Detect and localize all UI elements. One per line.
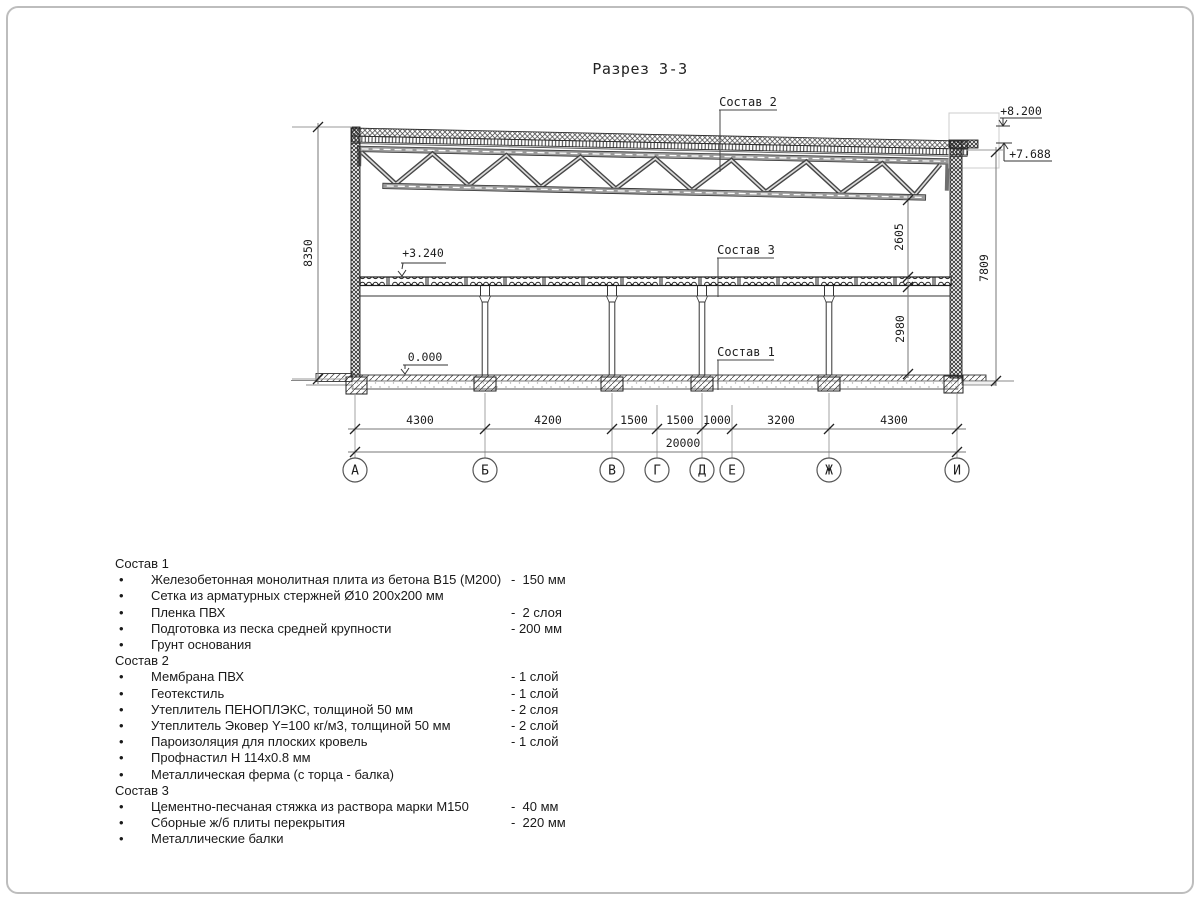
axis-label-a: А <box>351 464 359 479</box>
axis-extension-lines <box>355 393 957 458</box>
column <box>824 286 835 376</box>
dim-span-7: 4300 <box>880 413 908 427</box>
legend-item: Сборные ж/б плиты перекрытия- 220 мм <box>115 815 585 831</box>
dim-left-total: 8350 <box>301 239 315 267</box>
legend-item: Профнастил Н 114х0.8 мм <box>115 750 585 766</box>
elevation-roof-value: +7.688 <box>1009 147 1051 161</box>
page: Разрез 3-3 <box>0 0 1200 900</box>
right-wall <box>950 141 962 378</box>
dim-total: 20000 <box>666 436 701 450</box>
right-ledge <box>962 375 986 381</box>
axis-label-b: Б <box>481 464 489 479</box>
column <box>480 286 491 376</box>
axis-label-d: Д <box>698 464 706 479</box>
legend-item: Пленка ПВХ- 2 слоя <box>115 605 585 621</box>
dim-right-total: 7809 <box>977 254 991 282</box>
dim-span-6: 3200 <box>767 413 795 427</box>
legend-item: Сетка из арматурных стержней Ø10 200х200… <box>115 588 585 604</box>
elevation-parapet-value: +8.200 <box>1000 104 1042 118</box>
section-drawing: Состав 2 Состав 3 Состав 1 +8.200 +7.688… <box>0 84 1200 524</box>
elevation-floor: 0.000 <box>401 350 448 374</box>
dim-right-outer: 7809 <box>966 147 1004 386</box>
elevation-parapet: +8.200 <box>996 104 1042 126</box>
legend-section-title: Состав 1 <box>115 556 585 572</box>
legend-item-value: - 1 слой <box>511 669 559 685</box>
elevation-slab: +3.240 <box>398 246 446 276</box>
axis-bubbles: А Б В Г Д Е Ж И <box>343 458 969 482</box>
legend-item-value: - 150 мм <box>511 572 566 588</box>
elevation-floor-value: 0.000 <box>408 350 443 364</box>
leader-sostav1-label: Состав 1 <box>717 345 775 359</box>
leader-sostav3-label: Состав 3 <box>717 243 775 257</box>
dim-span-5: 1000 <box>703 413 731 427</box>
axis-label-g: Г <box>653 464 661 479</box>
leader-sostav3: Состав 3 <box>717 243 775 297</box>
columns <box>480 286 835 376</box>
legend-item: Подготовка из песка средней крупности- 2… <box>115 621 585 637</box>
axis-label-e: Е <box>728 464 736 479</box>
leader-sostav2-label: Состав 2 <box>719 95 777 109</box>
dim-span-2: 4200 <box>534 413 562 427</box>
legend-item: Металлическая ферма (с торца - балка) <box>115 767 585 783</box>
legend-item: Железобетонная монолитная плита из бетон… <box>115 572 585 588</box>
legend-item: Цементно-песчаная стяжка из раствора мар… <box>115 799 585 815</box>
column <box>607 286 618 376</box>
legend-item: Пароизоляция для плоских кровель- 1 слой <box>115 734 585 750</box>
legend-item-value: - 40 мм <box>511 799 559 815</box>
legend-item-value: - 200 мм <box>511 621 562 637</box>
legend-item-value: - 2 слоя <box>511 605 562 621</box>
legend-item-value: - 2 слой <box>511 718 559 734</box>
dim-floor-to-slab: 2980 <box>893 315 907 343</box>
left-wall <box>351 127 360 377</box>
dim-left-8350: 8350 <box>292 122 352 384</box>
hollow-core-slab <box>360 277 951 286</box>
axis-label-i: И <box>953 464 961 479</box>
legend-item: Утеплитель Эковер Y=100 кг/м3, толщиной … <box>115 718 585 734</box>
drawing-title: Разрез 3-3 <box>540 60 740 78</box>
legend-item: Металлические балки <box>115 831 585 847</box>
legend-item: Мембрана ПВХ- 1 слой <box>115 669 585 685</box>
legend-item-value: - 2 слоя <box>511 702 558 718</box>
legend-item: Грунт основания <box>115 637 585 653</box>
dim-truss-to-slab: 2605 <box>892 223 906 251</box>
legend-item: Утеплитель ПЕНОПЛЭКС, толщиной 50 мм- 2 … <box>115 702 585 718</box>
dim-span-1: 4300 <box>406 413 434 427</box>
legend-item-value: - 1 слой <box>511 734 559 750</box>
legend-item-value: - 1 слой <box>511 686 559 702</box>
dim-span-3: 1500 <box>620 413 648 427</box>
column <box>697 286 708 376</box>
axis-label-v: В <box>608 464 616 479</box>
axis-label-zh: Ж <box>825 464 833 479</box>
dim-span-4: 1500 <box>666 413 694 427</box>
dim-right-inner: 2605 2980 <box>892 195 925 379</box>
legend: Состав 1 Железобетонная монолитная плита… <box>115 556 585 848</box>
legend-item-value: - 220 мм <box>511 815 566 831</box>
legend-item: Геотекстиль- 1 слой <box>115 686 585 702</box>
roof-and-truss <box>351 128 968 201</box>
elevation-roof: +7.688 <box>996 143 1052 161</box>
legend-section-title: Состав 2 <box>115 653 585 669</box>
elevation-slab-value: +3.240 <box>402 246 444 260</box>
legend-section-title: Состав 3 <box>115 783 585 799</box>
